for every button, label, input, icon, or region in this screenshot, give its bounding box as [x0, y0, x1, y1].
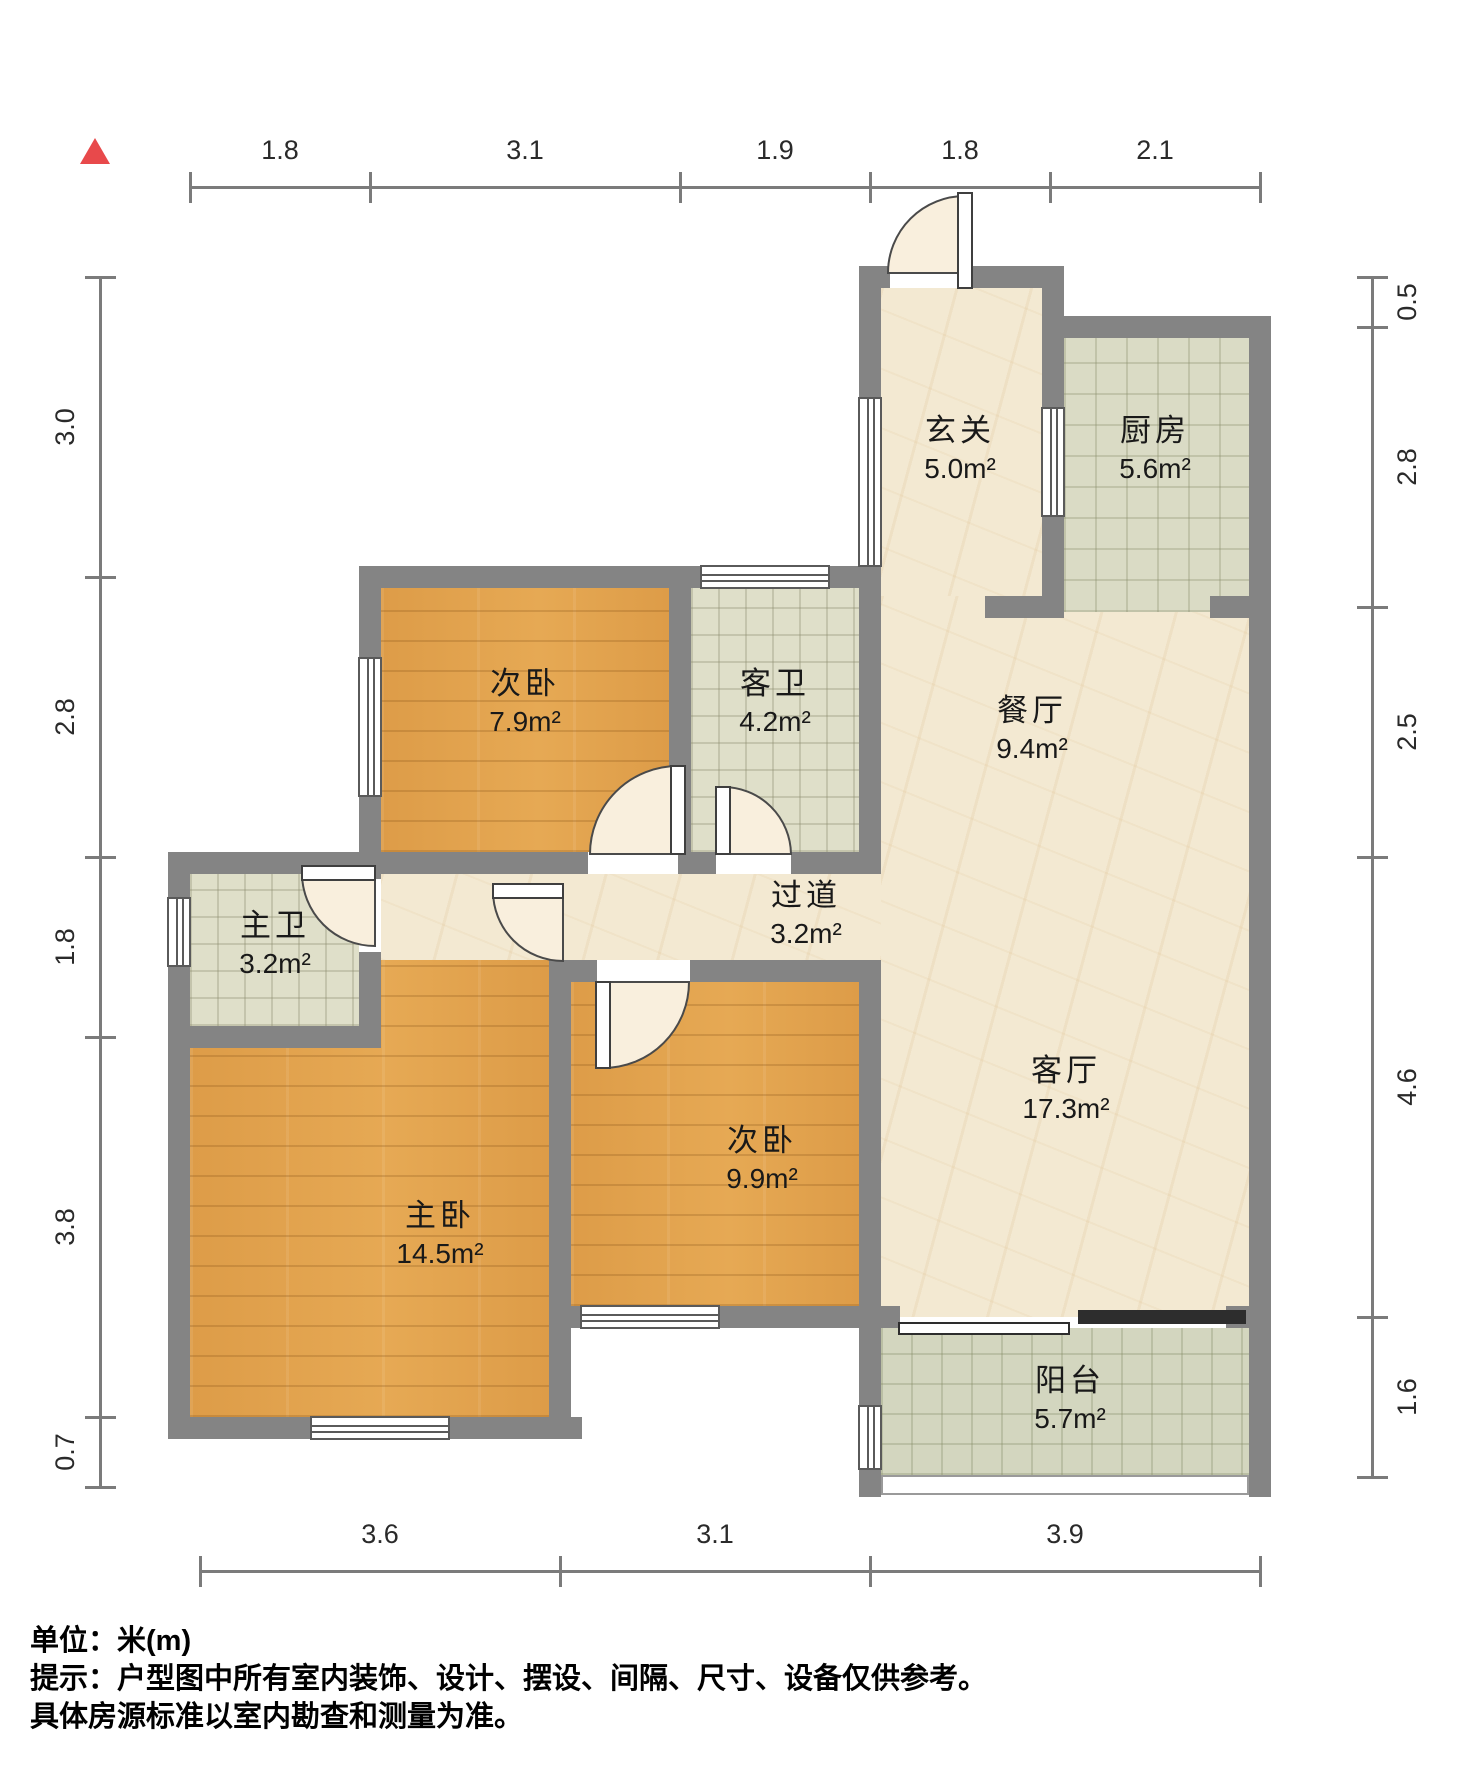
floor-bedroom-3	[571, 982, 859, 1306]
dim-tick-top	[869, 172, 872, 203]
wall	[669, 588, 691, 852]
wall	[359, 852, 381, 879]
footer-disclaimer-1: 提示：户型图中所有室内装饰、设计、摆设、间隔、尺寸、设备仅供参考。	[30, 1660, 987, 1698]
window-pane-line	[582, 1314, 718, 1316]
dim-line-right	[1371, 277, 1374, 1477]
window-pane-line	[1050, 409, 1052, 515]
wall	[359, 566, 381, 657]
dim-tick-right	[1357, 1476, 1388, 1479]
wall	[549, 960, 597, 982]
wall	[985, 596, 1050, 618]
dim-tick-top	[679, 172, 682, 203]
footer-unit-note: 单位：米(m)	[30, 1622, 987, 1660]
dim-label-left: 0.7	[49, 1407, 81, 1497]
floorplan-canvas: 1.83.11.91.82.13.63.13.93.02.81.83.80.70…	[0, 0, 1470, 1778]
window-bedroom3-bottom	[580, 1305, 720, 1329]
wall	[859, 588, 881, 874]
window-master-bath-left	[167, 897, 191, 967]
dim-label-top: 3.1	[480, 134, 570, 166]
dim-tick-left	[85, 1416, 116, 1419]
dim-label-top: 1.8	[235, 134, 325, 166]
window-pane-line	[312, 1425, 448, 1427]
dim-tick-bottom	[869, 1556, 872, 1587]
window-pane-line	[867, 399, 869, 565]
window-pane-line	[1056, 409, 1058, 515]
room-name-master-bedroom: 主卧	[396, 1197, 483, 1235]
room-label-balcony: 阳台5.7m²	[1034, 1362, 1106, 1438]
room-label-corridor: 过道3.2m²	[770, 877, 842, 953]
window-pane-line	[873, 399, 875, 565]
room-name-living: 客厅	[1022, 1052, 1109, 1090]
window-master-bottom	[310, 1416, 450, 1440]
dim-tick-left	[85, 576, 116, 579]
room-area-corridor: 3.2m²	[770, 915, 842, 953]
window-pane-line	[867, 1407, 869, 1468]
wall	[168, 852, 190, 897]
room-area-bedroom-3: 9.9m²	[726, 1160, 798, 1198]
dim-tick-left	[85, 856, 116, 859]
dim-label-left: 2.8	[49, 672, 81, 762]
room-name-balcony: 阳台	[1034, 1362, 1106, 1400]
room-name-bedroom-2: 次卧	[489, 665, 561, 703]
room-area-guest-bath: 4.2m²	[739, 703, 811, 741]
room-label-entry: 玄关5.0m²	[924, 412, 996, 488]
room-name-dining: 餐厅	[996, 692, 1068, 730]
room-name-entry: 玄关	[924, 412, 996, 450]
wall	[1210, 596, 1271, 618]
dim-label-left: 3.0	[49, 382, 81, 472]
dim-tick-left	[85, 276, 116, 279]
dim-tick-right	[1357, 1316, 1388, 1319]
wall	[830, 566, 881, 588]
room-label-master-bedroom: 主卧14.5m²	[396, 1197, 483, 1273]
dim-label-bottom: 3.1	[670, 1518, 760, 1550]
room-name-bedroom-3: 次卧	[726, 1122, 798, 1160]
wall	[690, 960, 881, 982]
footer-disclaimer-2: 具体房源标准以室内勘查和测量为准。	[30, 1698, 987, 1736]
room-name-master-bath: 主卫	[239, 907, 311, 945]
room-area-master-bedroom: 14.5m²	[396, 1235, 483, 1273]
room-area-dining: 9.4m²	[996, 730, 1068, 768]
room-area-living: 17.3m²	[1022, 1090, 1109, 1128]
dim-tick-right	[1357, 606, 1388, 609]
room-name-corridor: 过道	[770, 877, 842, 915]
dim-label-top: 1.9	[730, 134, 820, 166]
window-pane-line	[367, 659, 369, 795]
wall	[549, 1306, 580, 1328]
room-label-bedroom-3: 次卧9.9m²	[726, 1122, 798, 1198]
dim-tick-bottom	[199, 1556, 202, 1587]
room-label-master-bath: 主卫3.2m²	[239, 907, 311, 983]
dim-label-bottom: 3.9	[1020, 1518, 1110, 1550]
wall	[168, 1417, 310, 1439]
dim-label-right: 1.6	[1391, 1352, 1423, 1442]
room-area-entry: 5.0m²	[924, 450, 996, 488]
wall	[720, 1306, 881, 1328]
wall	[859, 1470, 881, 1497]
wall	[678, 852, 716, 874]
dim-tick-right	[1357, 326, 1388, 329]
wall	[168, 1026, 190, 1439]
wall	[168, 852, 381, 874]
balcony-slider-left	[898, 1322, 1070, 1335]
dim-tick-right	[1357, 276, 1388, 279]
room-area-balcony: 5.7m²	[1034, 1400, 1106, 1438]
dim-line-top	[190, 186, 1260, 189]
room-area-bedroom-2: 7.9m²	[489, 703, 561, 741]
room-name-guest-bath: 客卫	[739, 665, 811, 703]
window-pane-line	[702, 574, 828, 576]
dim-label-right: 2.8	[1391, 422, 1423, 512]
dim-label-right: 4.6	[1391, 1042, 1423, 1132]
dim-tick-top	[369, 172, 372, 203]
dim-label-right: 0.5	[1391, 257, 1423, 347]
dim-tick-left	[85, 1486, 116, 1489]
dim-label-left: 3.8	[49, 1182, 81, 1272]
north-indicator-icon	[80, 138, 110, 164]
dim-tick-top	[1049, 172, 1052, 203]
window-pane-line	[176, 899, 178, 965]
window-bedroom2-left	[358, 657, 382, 797]
room-label-guest-bath: 客卫4.2m²	[739, 665, 811, 741]
dim-tick-top	[1259, 172, 1262, 203]
wall	[359, 852, 588, 874]
room-label-dining: 餐厅9.4m²	[996, 692, 1068, 768]
footer-notes: 单位：米(m) 提示：户型图中所有室内装饰、设计、摆设、间隔、尺寸、设备仅供参考…	[30, 1622, 987, 1736]
wall	[168, 1026, 381, 1048]
window-pane-line	[373, 659, 375, 795]
window-pane-line	[182, 899, 184, 965]
dim-line-bottom	[200, 1570, 1260, 1573]
dim-tick-bottom	[1259, 1556, 1262, 1587]
wall	[859, 1317, 881, 1405]
room-label-kitchen: 厨房5.6m²	[1119, 412, 1191, 488]
dim-line-left	[99, 277, 102, 1487]
wall	[359, 952, 381, 1048]
dim-label-right: 2.5	[1391, 687, 1423, 777]
balcony-slider-right	[1078, 1310, 1246, 1324]
dim-label-top: 1.8	[915, 134, 1005, 166]
balcony-railing	[881, 1475, 1249, 1495]
wall	[549, 960, 571, 1439]
wall	[359, 566, 700, 588]
window-balcony-left	[858, 1405, 882, 1470]
room-name-kitchen: 厨房	[1119, 412, 1191, 450]
wall	[859, 266, 881, 397]
room-area-kitchen: 5.6m²	[1119, 450, 1191, 488]
window-pane-line	[582, 1320, 718, 1322]
wall	[1042, 316, 1271, 338]
window-pane-line	[312, 1431, 448, 1433]
wall	[791, 852, 859, 874]
dim-tick-left	[85, 1036, 116, 1039]
window-guest-bath-top	[700, 565, 830, 589]
dim-label-top: 2.1	[1110, 134, 1200, 166]
dim-tick-top	[189, 172, 192, 203]
dim-tick-bottom	[559, 1556, 562, 1587]
window-pane-line	[702, 580, 828, 582]
window-entry-kitchen	[1041, 407, 1065, 517]
window-entry-left	[858, 397, 882, 567]
room-label-bedroom-2: 次卧7.9m²	[489, 665, 561, 741]
room-label-living: 客厅17.3m²	[1022, 1052, 1109, 1128]
window-pane-line	[873, 1407, 875, 1468]
wall	[859, 960, 881, 1317]
dim-tick-right	[1357, 856, 1388, 859]
door-arc-entrance	[888, 196, 965, 273]
room-area-master-bath: 3.2m²	[239, 945, 311, 983]
dim-label-left: 1.8	[49, 902, 81, 992]
dim-label-bottom: 3.6	[335, 1518, 425, 1550]
